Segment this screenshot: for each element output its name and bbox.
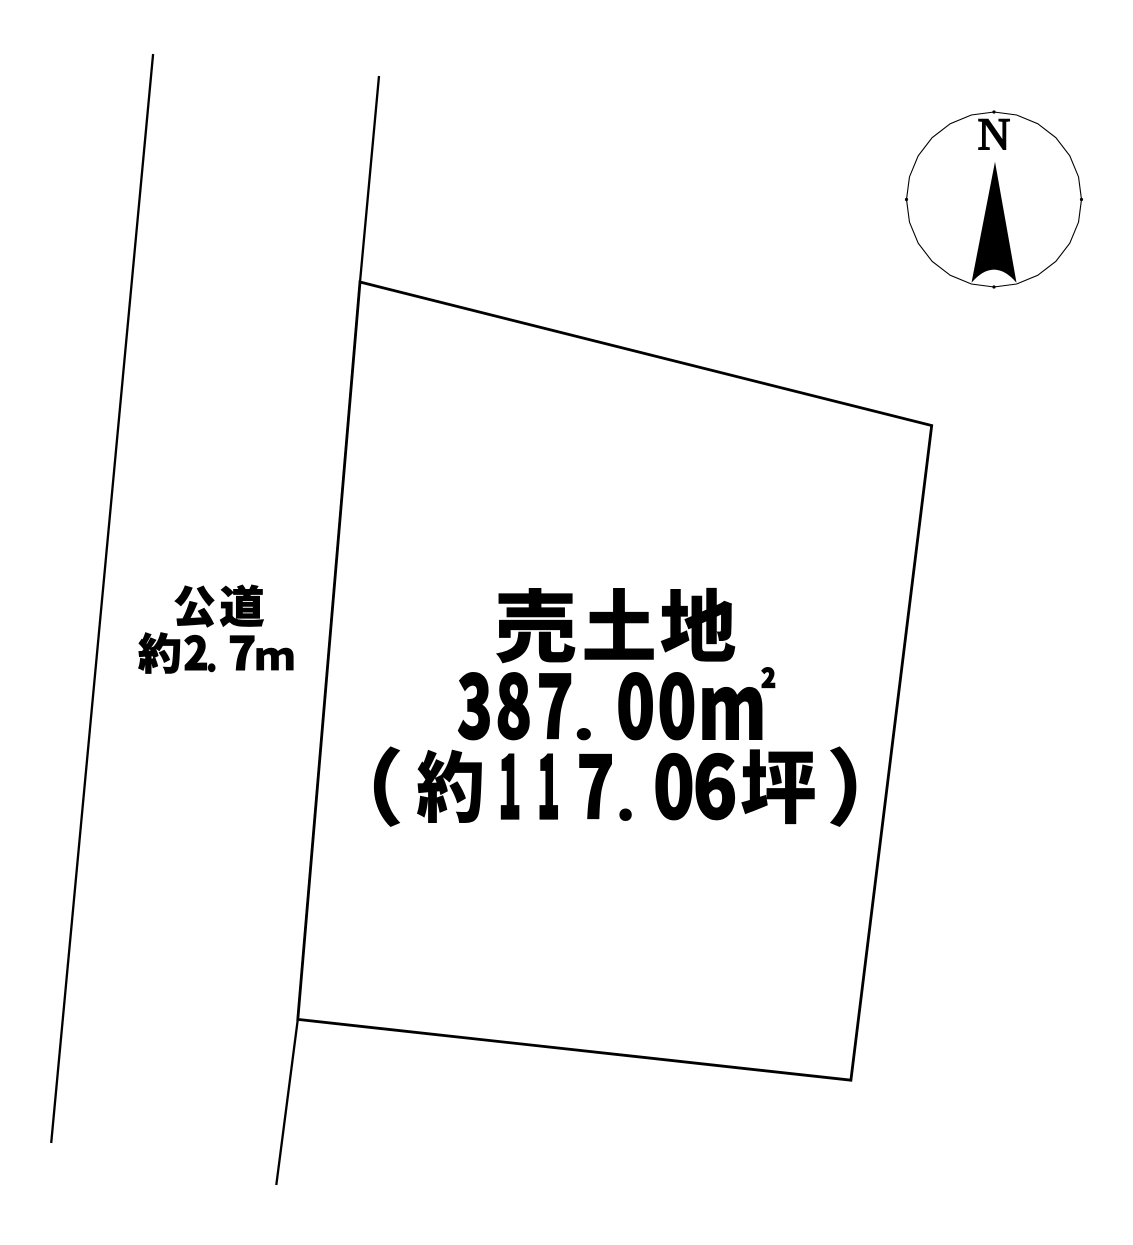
svg-text:N: N: [978, 109, 1011, 159]
